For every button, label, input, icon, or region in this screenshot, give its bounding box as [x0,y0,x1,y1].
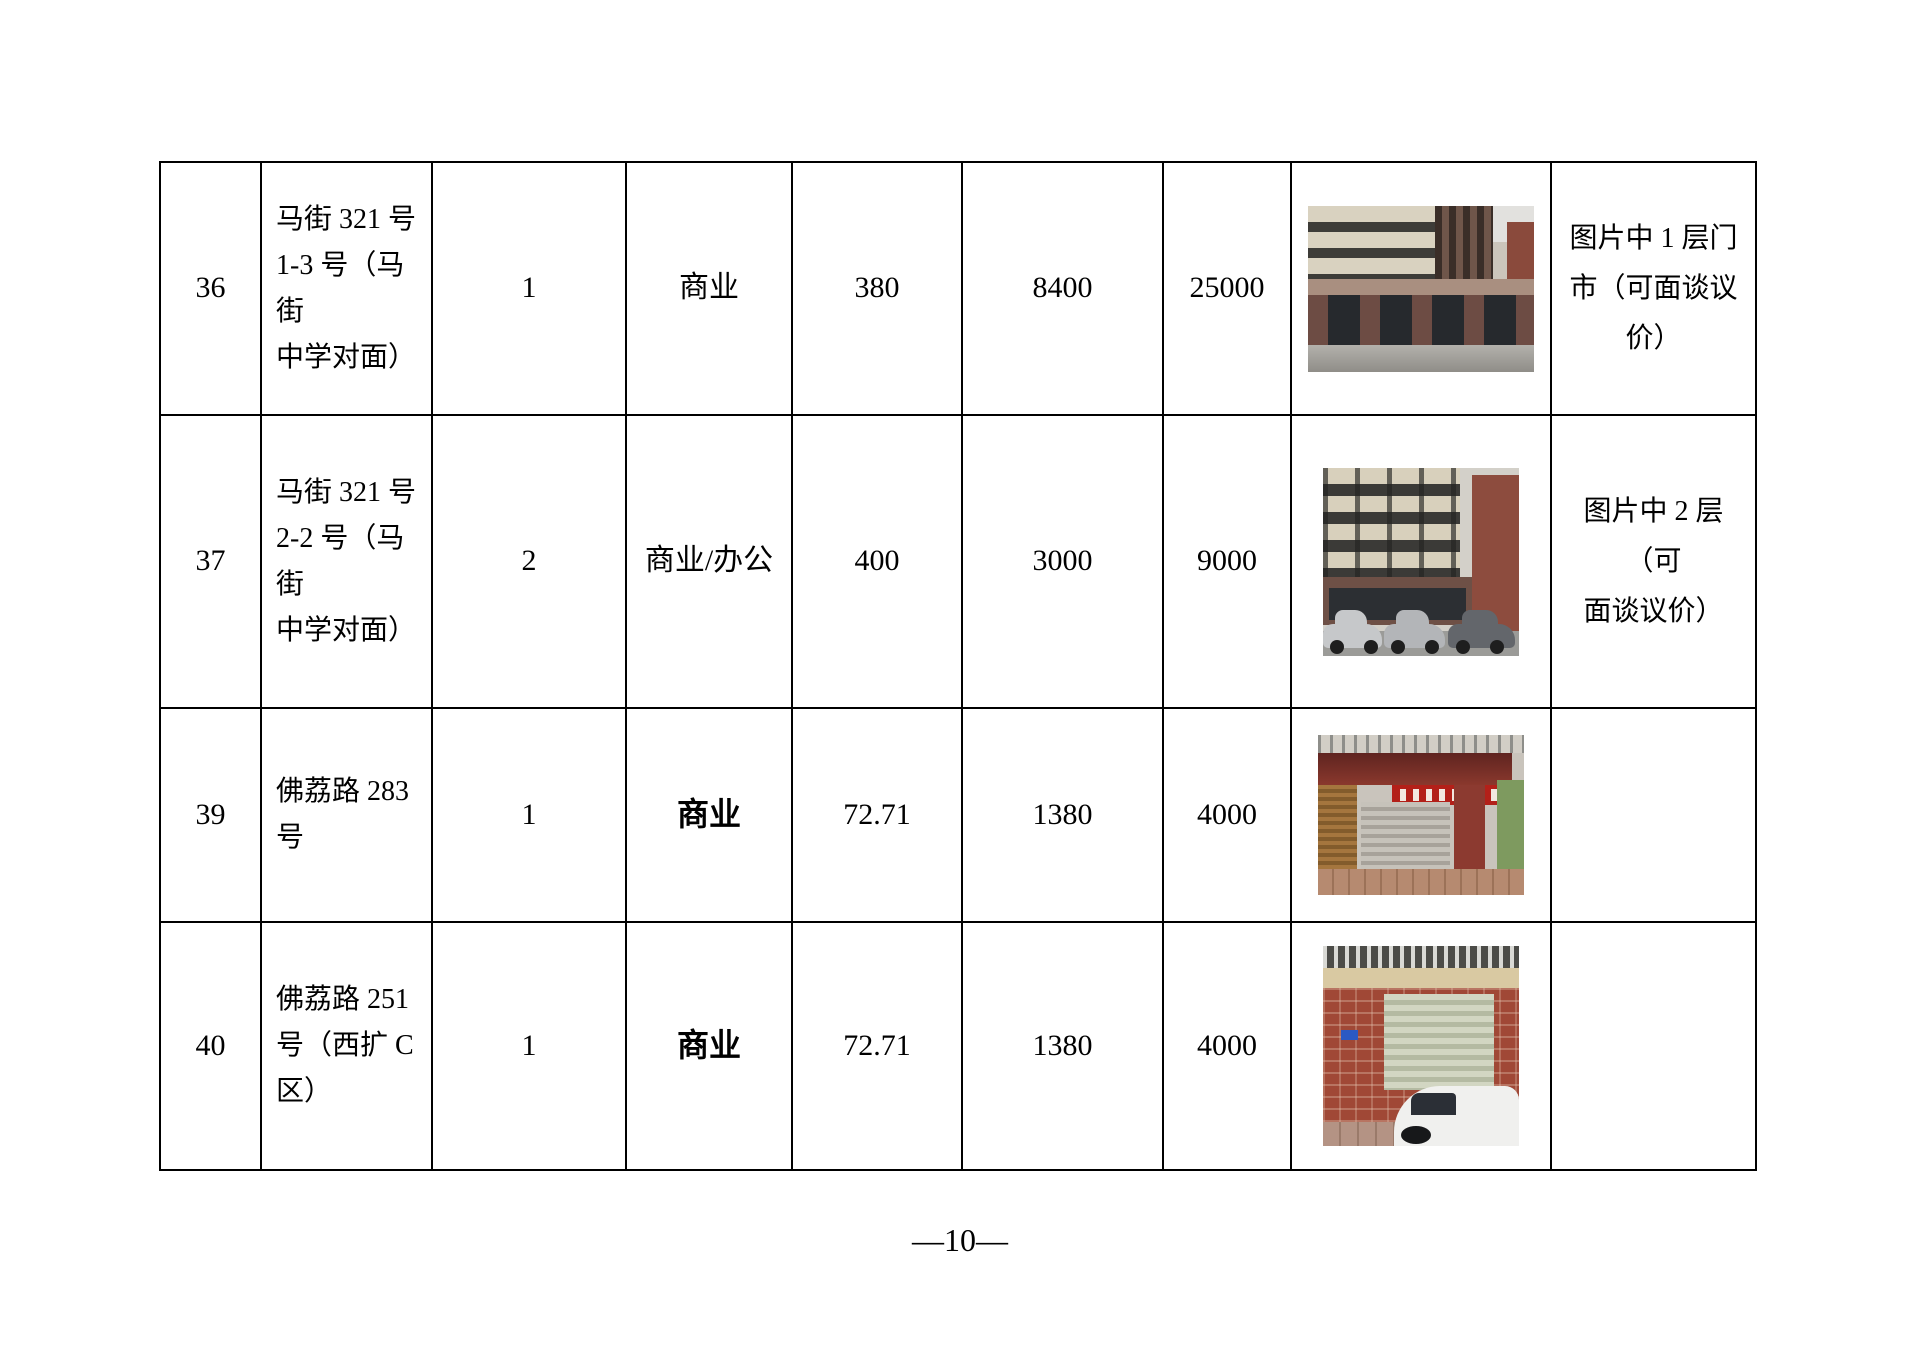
photo-facade-band [1308,279,1534,296]
address-line: 中学对面） [276,608,416,654]
address-line: 佛荔路 251 [276,977,409,1023]
photo-greenery [1497,780,1524,870]
photo-brick-building [1507,222,1534,282]
row-39-property-photo [1318,735,1524,895]
row-37-floor: 2 [433,416,627,709]
row-36-photo-cell [1292,163,1552,416]
row-36-number: 36 [161,163,262,416]
note-line: 面谈议价） [1583,587,1723,637]
row-37-number: 37 [161,416,262,709]
photo-window-wall [1435,206,1494,282]
row-37-note: 图片中 2 层（可 面谈议价） [1552,416,1757,709]
row-37-property-photo [1323,468,1519,656]
row-36-usage: 商业 [627,163,793,416]
address-line: 区） [276,1069,332,1115]
note-line: 价） [1625,314,1681,364]
photo-car [1323,624,1382,648]
photo-sign-text [1400,789,1503,800]
row-37-photo-cell [1292,416,1552,709]
note-line: 图片中 2 层（可 [1560,487,1747,587]
row-39-usage: 商业 [627,709,793,923]
row-39-area: 72.71 [793,709,963,923]
row-39-address: 佛荔路 283 号 [262,709,433,923]
row-36-price: 25000 [1164,163,1292,416]
address-line: 中学对面） [276,335,416,381]
row-40-floor: 1 [433,923,627,1171]
address-line: 号（西扩 C [276,1023,414,1069]
address-line: 2-2 号（马街 [276,516,423,608]
address-line: 1-3 号（马街 [276,243,423,335]
row-40-area: 72.71 [793,923,963,1171]
photo-white-car [1394,1086,1519,1146]
row-40-price: 4000 [1164,923,1292,1171]
photo-roller-shutter [1361,802,1450,869]
row-40-usage: 商业 [627,923,793,1171]
document-page: 36 马街 321 号 1-3 号（马街 中学对面） 1 商业 380 8400… [0,0,1920,1357]
photo-window-grille [1323,946,1519,968]
row-39-rent: 1380 [963,709,1164,923]
row-39-floor: 1 [433,709,627,923]
row-37-area: 400 [793,416,963,709]
photo-storefront-columns [1308,295,1534,345]
row-36-note: 图片中 1 层门 市（可面谈议 价） [1552,163,1757,416]
photo-window-frames [1323,468,1460,592]
page-number: —10— [0,1222,1920,1259]
row-39-number: 39 [161,709,262,923]
note-line: 市（可面谈议 [1569,264,1737,314]
row-37-address: 马街 321 号 2-2 号（马街 中学对面） [262,416,433,709]
row-39-photo-cell [1292,709,1552,923]
photo-lintel [1323,968,1519,988]
note-line: 图片中 1 层门 [1569,214,1737,264]
row-37-price: 9000 [1164,416,1292,709]
address-line: 佛荔路 283 [276,769,409,815]
property-table: 36 马街 321 号 1-3 号（马街 中学对面） 1 商业 380 8400… [159,161,1757,1171]
row-37-rent: 3000 [963,416,1164,709]
row-39-note [1552,709,1757,923]
photo-house-number-plate [1341,1030,1359,1040]
row-39-price: 4000 [1164,709,1292,923]
photo-red-awning [1318,753,1512,785]
row-40-photo-cell [1292,923,1552,1171]
row-40-property-photo [1323,946,1519,1146]
row-40-address: 佛荔路 251 号（西扩 C 区） [262,923,433,1171]
row-40-rent: 1380 [963,923,1164,1171]
row-36-area: 380 [793,163,963,416]
address-line: 马街 321 号 [276,470,416,516]
row-37-usage: 商业/办公 [627,416,793,709]
row-40-number: 40 [161,923,262,1171]
photo-car [1448,624,1515,648]
address-line: 马街 321 号 [276,197,416,243]
photo-brick-column [1454,785,1485,870]
photo-pavement [1308,345,1534,372]
row-36-floor: 1 [433,163,627,416]
photo-car [1384,624,1445,648]
photo-brick-pavement [1318,869,1524,895]
address-line: 号 [276,815,304,861]
row-40-note [1552,923,1757,1171]
row-36-property-photo [1308,206,1534,372]
photo-balcony-railing [1318,735,1524,753]
photo-roller-shutter [1384,994,1494,1090]
row-36-address: 马街 321 号 1-3 号（马街 中学对面） [262,163,433,416]
row-36-rent: 8400 [963,163,1164,416]
photo-left-shutter [1318,785,1357,870]
